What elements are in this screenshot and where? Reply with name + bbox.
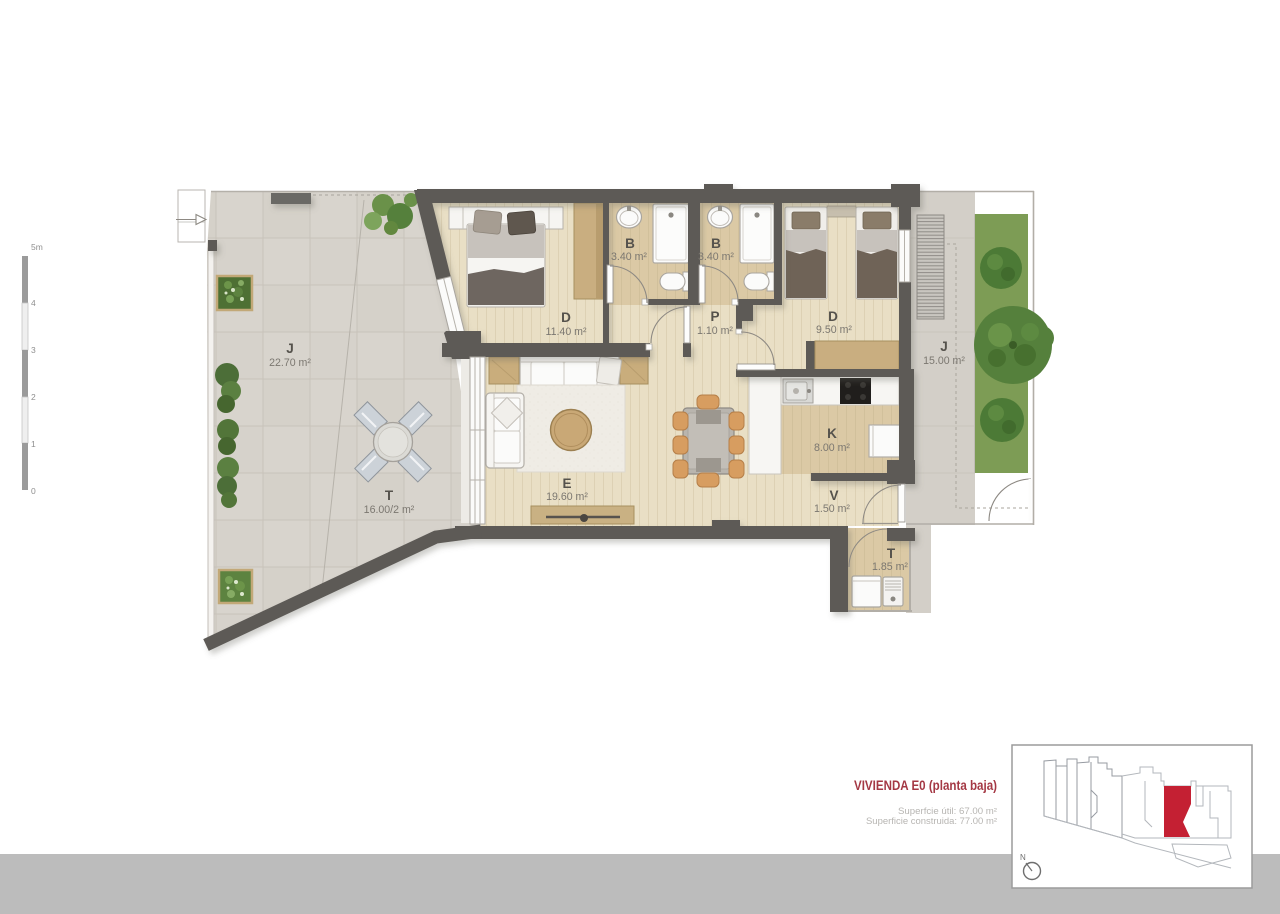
svg-text:T: T: [385, 488, 394, 503]
svg-text:3.40 m²: 3.40 m²: [698, 251, 734, 263]
svg-text:3: 3: [31, 345, 36, 355]
svg-text:8.00 m²: 8.00 m²: [814, 442, 850, 454]
svg-text:B: B: [711, 236, 721, 251]
svg-text:D: D: [828, 309, 838, 324]
svg-text:3.40 m²: 3.40 m²: [611, 251, 647, 263]
svg-text:J: J: [940, 339, 948, 354]
svg-text:19.60 m²: 19.60 m²: [546, 491, 588, 503]
svg-text:N: N: [1020, 853, 1026, 862]
svg-text:2: 2: [31, 392, 36, 402]
svg-text:Superfcie útil: 67.00 m²: Superfcie útil: 67.00 m²: [898, 806, 997, 816]
svg-text:P: P: [710, 309, 719, 324]
svg-text:15.00 m²: 15.00 m²: [923, 355, 965, 367]
svg-text:16.00/2 m²: 16.00/2 m²: [364, 504, 415, 516]
svg-text:V: V: [829, 488, 838, 503]
svg-text:B: B: [625, 236, 635, 251]
svg-text:1.85 m²: 1.85 m²: [872, 561, 908, 573]
svg-text:9.50 m²: 9.50 m²: [816, 324, 852, 336]
svg-text:K: K: [827, 426, 837, 441]
svg-text:1.10 m²: 1.10 m²: [697, 325, 733, 337]
svg-text:Superficie construida: 77.00 m: Superficie construida: 77.00 m²: [866, 816, 997, 826]
svg-text:VIVIENDA E0 (planta baja): VIVIENDA E0 (planta baja): [854, 777, 997, 793]
svg-text:1.50 m²: 1.50 m²: [814, 503, 850, 515]
svg-text:1: 1: [31, 439, 36, 449]
svg-text:D: D: [561, 310, 571, 325]
svg-text:0: 0: [31, 486, 36, 496]
svg-text:J: J: [286, 341, 294, 356]
svg-text:11.40 m²: 11.40 m²: [545, 326, 586, 338]
svg-text:T: T: [887, 546, 896, 561]
svg-text:5m: 5m: [31, 242, 43, 252]
svg-text:22.70 m²: 22.70 m²: [269, 357, 311, 369]
svg-text:E: E: [562, 476, 571, 491]
svg-text:4: 4: [31, 298, 36, 308]
